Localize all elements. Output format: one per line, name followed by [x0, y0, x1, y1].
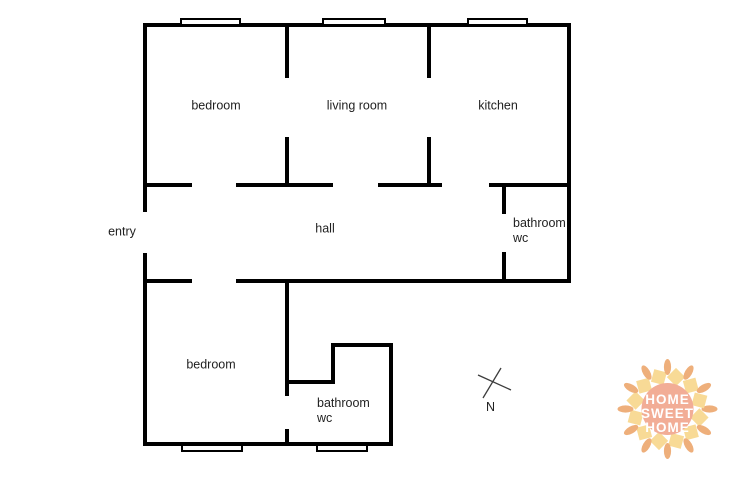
wall-segment — [285, 429, 289, 446]
room-label-text: hall — [315, 222, 334, 237]
compass-cross-line — [478, 375, 511, 390]
room-label-text: bathroom — [513, 216, 566, 231]
wall-segment — [143, 279, 192, 283]
room-label-entry: entry — [108, 225, 136, 240]
window — [322, 18, 386, 26]
room-label-kitchen: kitchen — [478, 99, 518, 114]
window — [467, 18, 528, 26]
wall-segment — [143, 23, 147, 212]
wall-segment — [143, 253, 147, 446]
wall-segment — [502, 183, 506, 214]
window — [316, 444, 368, 452]
wall-segment — [285, 23, 289, 78]
wall-segment — [427, 23, 431, 78]
logo-diamond-icon — [651, 369, 667, 385]
wall-segment — [389, 343, 393, 446]
compass-icon: N — [465, 355, 525, 415]
room-label-bathroom-top: bathroomwc — [513, 216, 566, 246]
wall-segment — [285, 279, 289, 396]
room-label-living-room: living room — [327, 99, 387, 114]
floor-plan: bedroomliving roomkitchenentryhallbathro… — [0, 0, 740, 493]
window — [181, 444, 243, 452]
wall-segment — [143, 183, 192, 187]
room-label-text: bedroom — [186, 358, 235, 373]
logo-diamond-icon — [668, 433, 684, 449]
room-label-text: living room — [327, 99, 387, 114]
wall-segment — [331, 343, 393, 347]
logo-text-line-3: HOME — [645, 420, 690, 435]
room-label-text: wc — [317, 411, 370, 426]
logo-text-line-1: HOME — [645, 392, 690, 407]
logo-sprig-icon — [664, 443, 671, 459]
home-sweet-home-logo: HOME SWEET HOME — [612, 357, 722, 461]
room-label-text: kitchen — [478, 99, 518, 114]
wall-segment — [427, 137, 431, 187]
wall-segment — [378, 183, 442, 187]
room-label-bathroom-bottom: bathroomwc — [317, 396, 370, 426]
room-label-text: wc — [513, 231, 566, 246]
room-label-bedroom-bottom: bedroom — [186, 358, 235, 373]
wall-segment — [285, 137, 289, 187]
room-label-hall: hall — [315, 222, 334, 237]
logo-text-line-2: SWEET — [641, 406, 694, 421]
room-label-text: entry — [108, 225, 136, 240]
wall-segment — [285, 380, 335, 384]
logo-sprig-icon — [664, 359, 671, 375]
compass-north-label: N — [486, 400, 495, 414]
window — [180, 18, 241, 26]
room-label-text: bathroom — [317, 396, 370, 411]
wall-segment — [567, 23, 571, 283]
room-label-text: bedroom — [191, 99, 240, 114]
logo-sprig-icon — [618, 405, 634, 412]
wall-segment — [331, 343, 335, 384]
wall-segment — [502, 252, 506, 283]
room-label-bedroom-top: bedroom — [191, 99, 240, 114]
compass-needle-line — [483, 368, 501, 398]
